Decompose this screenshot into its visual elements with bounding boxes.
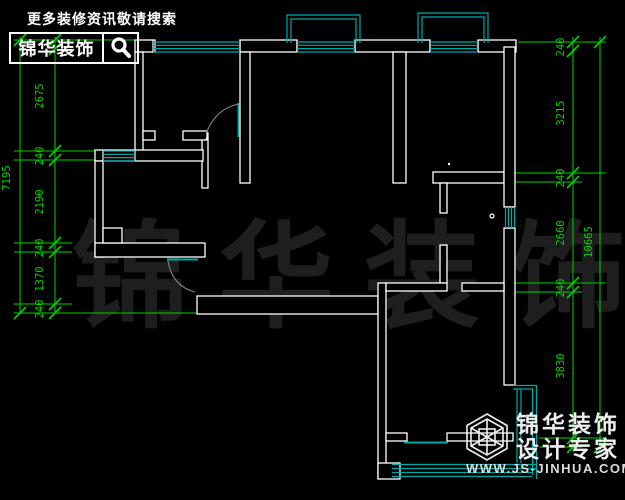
bottom-logo-url: WWW.JS-JINHUA.COM xyxy=(466,461,625,476)
search-icon xyxy=(104,34,137,62)
bottom-logo-line1: 锦华装饰 xyxy=(516,412,620,437)
search-box: 锦华装饰 xyxy=(9,32,139,64)
dim-left-overall: 7195 xyxy=(1,165,13,190)
dim-left-seg-3: 240 xyxy=(34,239,46,258)
cube-logo-icon xyxy=(462,412,512,462)
window-bedroom1 xyxy=(153,42,240,52)
top-tagline: 更多装修资讯敬请搜索 xyxy=(27,9,177,29)
window-caps xyxy=(103,40,515,228)
dim-left-seg-5: 240 xyxy=(34,300,46,319)
dim-left-seg-2: 2190 xyxy=(34,189,46,214)
door-arc-bedroom3 xyxy=(168,261,195,292)
door-arc-bedroom1 xyxy=(206,104,239,134)
floorplan-image: 锦华装饰 xyxy=(0,0,625,500)
window-bedroom2 xyxy=(297,42,355,52)
dim-right-seg-2: 240 xyxy=(555,169,567,188)
dim-left-seg-1: 240 xyxy=(34,147,46,166)
dim-right-seg-3: 2660 xyxy=(555,220,567,245)
dim-right-seg-1: 3215 xyxy=(555,100,567,125)
top-logo-text: 锦华装饰 xyxy=(11,34,102,62)
dim-left-seg-4: 1370 xyxy=(34,266,46,291)
dim-right-seg-5: 3830 xyxy=(555,353,567,378)
bottom-logo-line2: 设计专家 xyxy=(516,437,620,462)
bottom-logo: 锦华装饰 设计专家 xyxy=(462,412,620,462)
bay-window-1 xyxy=(287,15,360,43)
walls xyxy=(95,40,516,479)
window-top-right xyxy=(430,42,478,52)
dim-right-seg-4: 240 xyxy=(555,279,567,298)
bay-window-2 xyxy=(418,13,488,43)
window-right xyxy=(506,207,515,228)
dim-right-seg-0: 240 xyxy=(555,38,567,57)
dim-left-seg-0: 2675 xyxy=(34,83,46,108)
dim-right-overall: 10665 xyxy=(583,226,595,258)
